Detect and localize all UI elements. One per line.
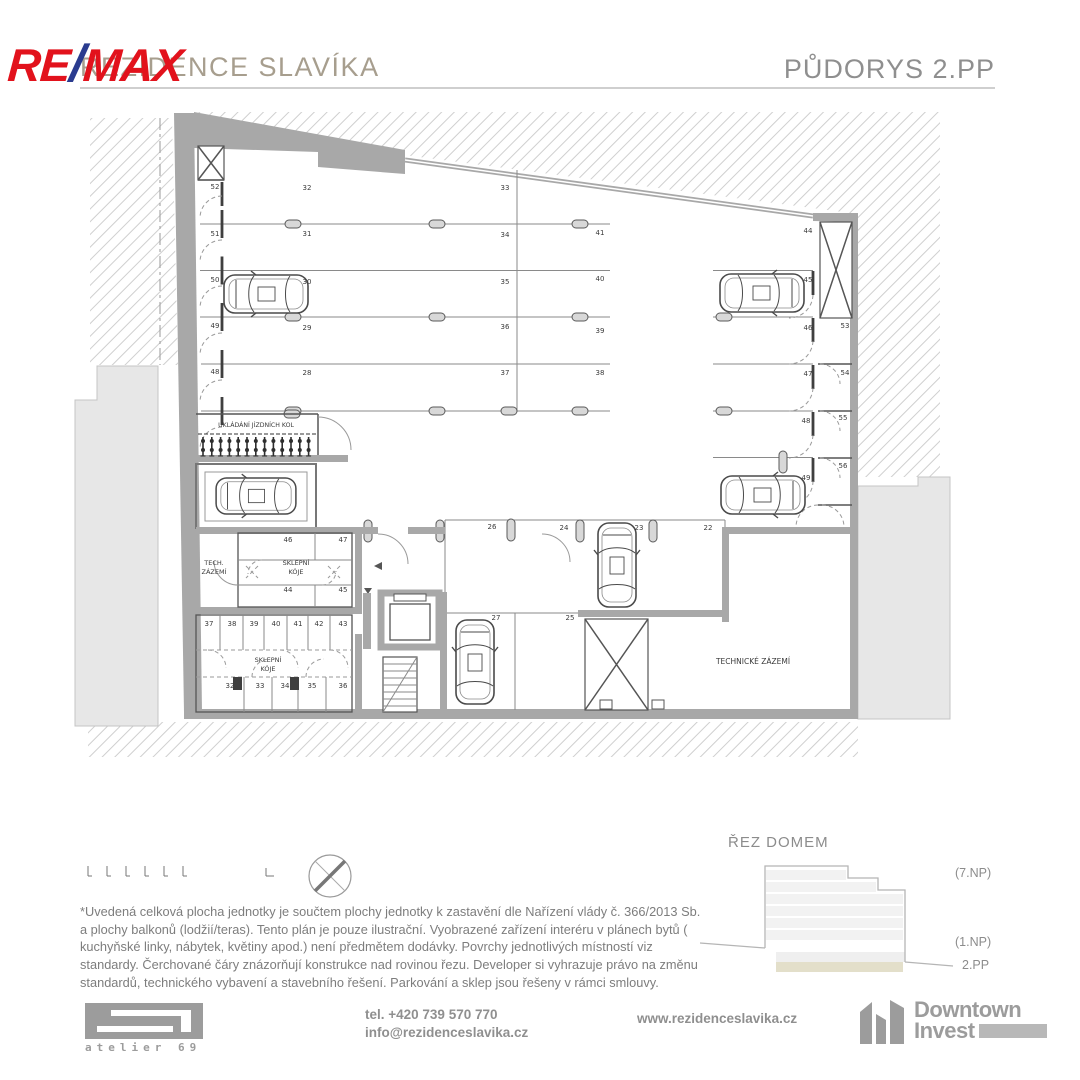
parking-space-label: 34 — [501, 231, 510, 239]
phone-number: tel. +420 739 570 770 — [365, 1006, 528, 1024]
parking-space-label: 37 — [205, 620, 214, 628]
remax-logo-re: RE — [6, 39, 72, 91]
floor-label-7np: (7.NP) — [955, 866, 991, 880]
remax-logo-max: MAX — [81, 39, 184, 91]
parking-space-label: 29 — [303, 324, 312, 332]
adjacent-building-left — [75, 366, 158, 726]
parking-space-label: 41 — [596, 229, 605, 237]
parking-space-label: 55 — [839, 414, 848, 422]
header-divider — [80, 87, 995, 89]
parking-space-label: 47 — [804, 370, 813, 378]
parking-space-label: 53 — [841, 322, 850, 330]
parking-space-label: 48 — [211, 368, 220, 376]
parking-space-label: 24 — [560, 524, 569, 532]
developer-name-line2: Invest — [914, 1021, 1047, 1042]
room-label: UKLÁDÁNÍ JÍZDNÍCH KOL — [218, 420, 294, 429]
room-label: KÓJE — [288, 567, 303, 576]
parking-space-label: 39 — [250, 620, 259, 628]
parking-space-label: 49 — [802, 474, 811, 482]
parking-space-label: 37 — [501, 369, 510, 377]
website-url: www.rezidenceslavika.cz — [637, 1011, 797, 1026]
parking-space-label: 41 — [294, 620, 303, 628]
parking-space-label: 34 — [281, 682, 290, 690]
parking-space-label: 45 — [804, 276, 813, 284]
atelier69-logo — [85, 1003, 215, 1043]
room-label: TECH. — [203, 559, 223, 567]
room-label: KÓJE — [260, 664, 275, 673]
parking-space-label: 44 — [804, 227, 813, 235]
parking-space-label: 36 — [501, 323, 510, 331]
downtown-invest-logo: Downtown Invest — [860, 1000, 1047, 1044]
parking-space-label: 43 — [339, 620, 348, 628]
email-address: info@rezidenceslavika.cz — [365, 1024, 528, 1042]
floor-label-2pp: 2.PP — [962, 958, 989, 972]
parking-space-label: 36 — [339, 682, 348, 690]
parking-space-label: 30 — [303, 278, 312, 286]
parking-space-label: 46 — [804, 324, 813, 332]
parking-space-label: 45 — [339, 586, 348, 594]
parking-space-label: 44 — [284, 586, 293, 594]
parking-space-label: 23 — [635, 524, 644, 532]
parking-space-label: 32 — [303, 184, 312, 192]
parking-space-label: 26 — [488, 523, 497, 531]
parking-space-label: 51 — [211, 230, 220, 238]
parking-space-label: 56 — [839, 462, 848, 470]
downtown-invest-mark-icon — [860, 1000, 906, 1044]
floor-2pp-highlight — [776, 962, 903, 972]
plan-title: PŮDORYS 2.PP — [784, 54, 995, 85]
room-label: SKLEPNÍ — [255, 655, 282, 664]
parking-space-label: 42 — [315, 620, 324, 628]
parking-space-label: 39 — [596, 327, 605, 335]
parking-space-label: 49 — [211, 322, 220, 330]
parking-space-label: 47 — [339, 536, 348, 544]
parking-space-label: 28 — [303, 369, 312, 377]
disclaimer-text: *Uvedená celková plocha jednotky je souč… — [80, 903, 708, 991]
room-label: ZÁZEMÍ — [202, 567, 227, 576]
parking-space-label: 48 — [802, 417, 811, 425]
scale-bar — [88, 866, 274, 876]
floor-1pp — [776, 952, 905, 962]
parking-space-label: 40 — [596, 275, 605, 283]
north-compass-icon — [309, 855, 351, 897]
parking-space-label: 52 — [211, 183, 220, 191]
contact-block: tel. +420 739 570 770 info@rezidenceslav… — [365, 1006, 528, 1041]
remax-logo: RE/MAX — [6, 34, 185, 94]
parking-space-label: 38 — [228, 620, 237, 628]
parking-space-label: 54 — [841, 369, 850, 377]
parking-space-label: 32 — [226, 682, 235, 690]
hatch-area-left — [90, 118, 178, 365]
ground-line-right — [905, 962, 953, 966]
parking-space-label: 33 — [256, 682, 265, 690]
parking-space-label: 46 — [284, 536, 293, 544]
room-label: TECHNICKÉ ZÁZEMÍ — [715, 657, 790, 666]
hatch-area-bottom — [88, 722, 858, 757]
atelier69-logo-text: atelier 69 — [85, 1041, 201, 1054]
room-label: SKLEPNÍ — [283, 558, 310, 567]
parking-space-label: 25 — [566, 614, 575, 622]
garage-floor — [190, 130, 852, 712]
brochure-page: 5251504948323130292833343536374140393844… — [0, 0, 1080, 1080]
parking-space-label: 50 — [211, 276, 220, 284]
parking-space-label: 27 — [492, 614, 501, 622]
parking-space-label: 31 — [303, 230, 312, 238]
floor-label-1np: (1.NP) — [955, 935, 991, 949]
parking-space-label: 22 — [704, 524, 713, 532]
downtown-invest-text: Downtown Invest — [914, 1000, 1047, 1042]
developer-badge — [979, 1024, 1047, 1038]
building-section-drawing — [700, 830, 960, 995]
parking-space-label: 35 — [308, 682, 317, 690]
parking-space-label: 40 — [272, 620, 281, 628]
parking-space-label: 35 — [501, 278, 510, 286]
ground-line-left — [700, 943, 765, 948]
adjacent-building-right — [858, 477, 950, 719]
parking-space-label: 33 — [501, 184, 510, 192]
parking-space-label: 38 — [596, 369, 605, 377]
